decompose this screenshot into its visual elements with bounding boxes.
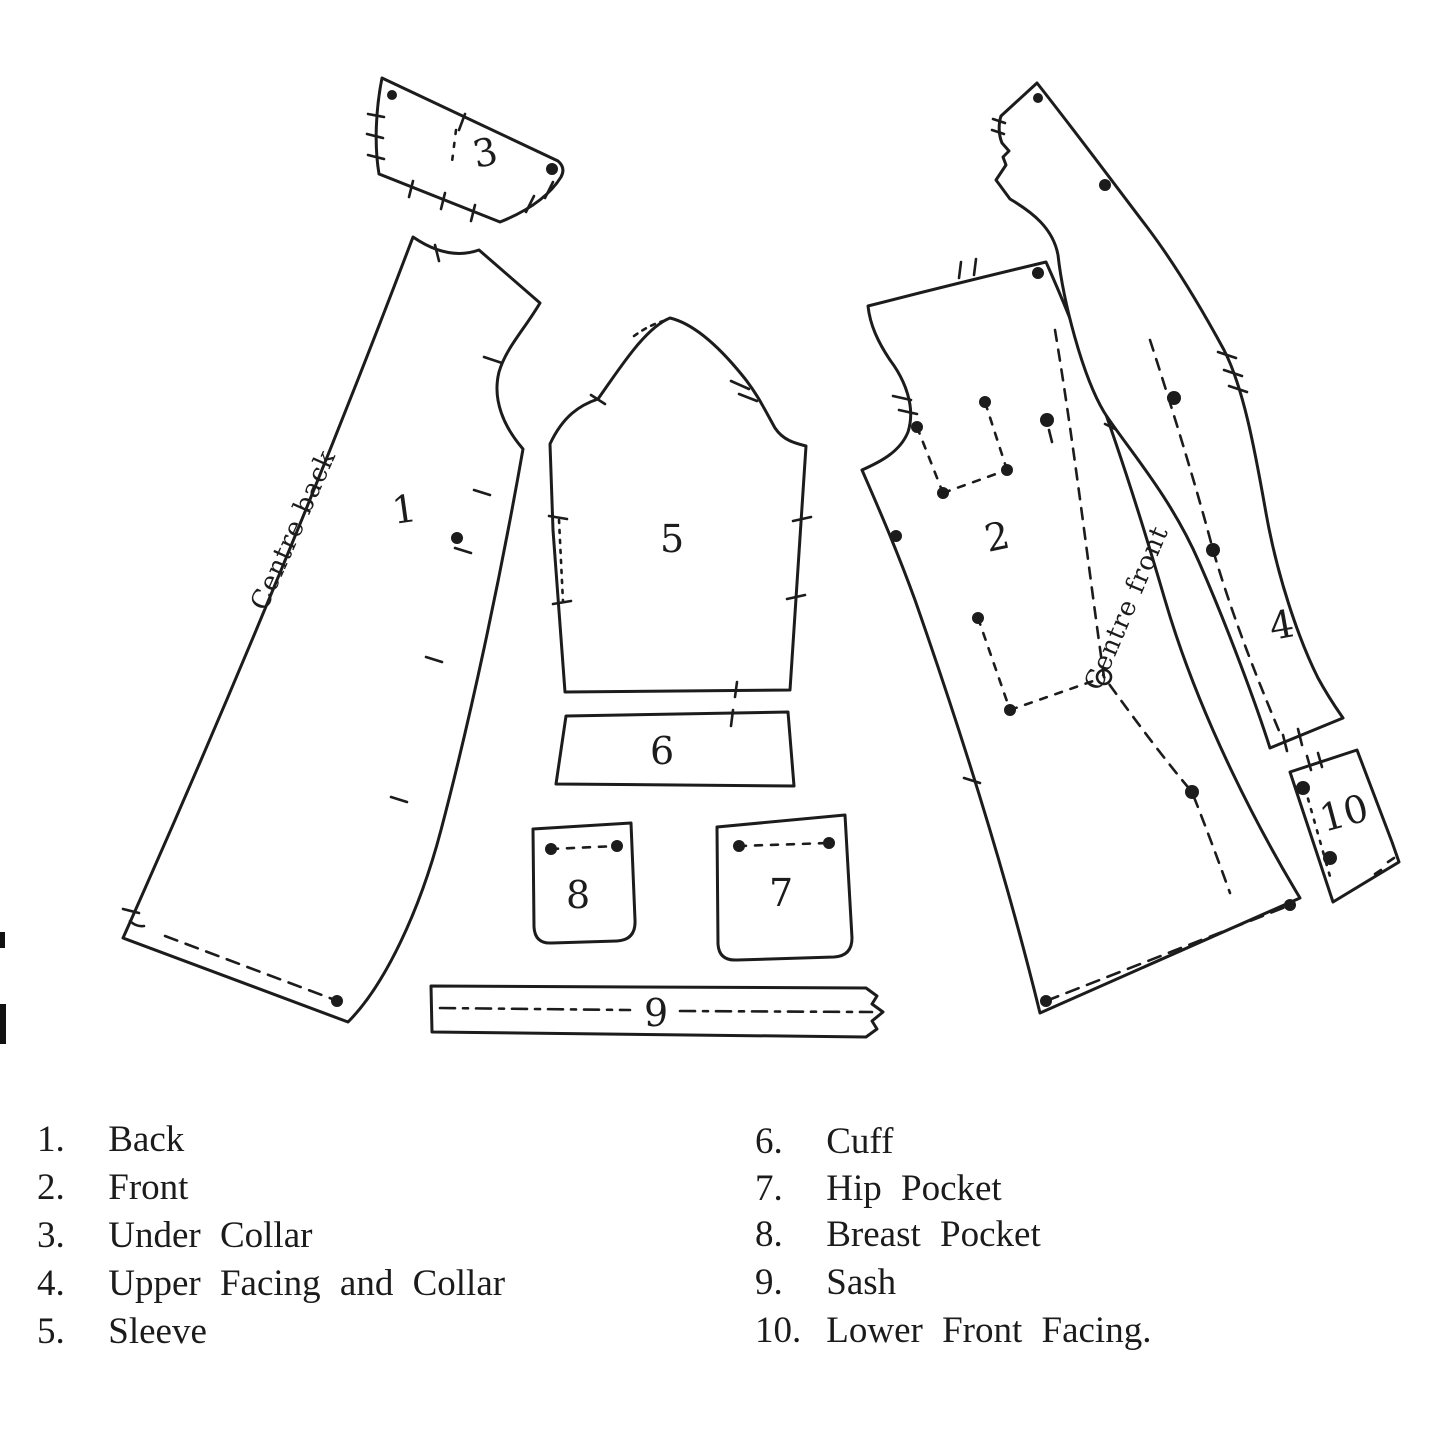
piece-sleeve: 5 (549, 318, 811, 697)
legend-label: Hip Pocket (826, 1168, 1001, 1209)
piece-number-9: 9 (644, 991, 668, 1035)
piece-cuff: 6 (556, 710, 794, 786)
legend-number: 3. (37, 1216, 99, 1257)
piece-under-collar-outline (376, 78, 563, 222)
legend-item-6: 6. Cuff (755, 1122, 893, 1163)
legend-label: Cuff (826, 1121, 893, 1162)
piece-breast-pocket: 8 (533, 823, 635, 943)
piece-sash: 9 (431, 986, 883, 1037)
legend-number: 6. (755, 1122, 817, 1163)
legend-item-9: 9. Sash (755, 1263, 896, 1304)
legend-item-4: 4. Upper Facing and Collar (37, 1264, 505, 1305)
piece-hip-pocket: 7 (717, 815, 852, 960)
piece-number-6: 6 (650, 729, 674, 773)
legend-number: 1. (37, 1120, 99, 1161)
piece-cuff-outline (556, 712, 794, 786)
legend-item-7: 7. Hip Pocket (755, 1169, 1002, 1210)
legend-number: 8. (755, 1215, 817, 1256)
legend-label: Breast Pocket (826, 1214, 1040, 1255)
legend-label: Back (108, 1119, 184, 1160)
legend-item-1: 1. Back (37, 1120, 184, 1161)
legend-label: Lower Front Facing. (826, 1310, 1151, 1351)
scan-artifact (0, 1004, 6, 1044)
legend-item-10: 10. Lower Front Facing. (755, 1311, 1151, 1352)
piece-number-5: 5 (660, 517, 684, 561)
legend-number: 10. (755, 1311, 817, 1352)
piece-back: 1 Centre back (123, 237, 540, 1022)
piece-under-collar: 3 (367, 78, 563, 222)
legend-number: 2. (37, 1168, 99, 1209)
legend-label: Upper Facing and Collar (108, 1263, 505, 1304)
piece-number-8: 8 (566, 873, 590, 917)
piece-number-7: 7 (769, 871, 793, 915)
legend-label: Under Collar (108, 1215, 312, 1256)
legend-label: Sash (826, 1262, 896, 1303)
legend-number: 4. (37, 1264, 99, 1305)
legend-item-5: 5. Sleeve (37, 1312, 207, 1353)
legend-item-2: 2. Front (37, 1168, 188, 1209)
piece-sleeve-outline (550, 318, 806, 692)
piece-lower-front-facing: 10 (1290, 750, 1399, 902)
piece-back-outline (123, 237, 540, 1022)
legend-number: 5. (37, 1312, 99, 1353)
legend-number: 7. (755, 1169, 817, 1210)
legend-label: Front (108, 1167, 188, 1208)
legend-label: Sleeve (108, 1311, 207, 1352)
scanned-pattern-page: 3 1 Centre back (0, 0, 1445, 1445)
legend-number: 9. (755, 1263, 817, 1304)
legend-item-8: 8. Breast Pocket (755, 1215, 1041, 1256)
legend-item-3: 3. Under Collar (37, 1216, 312, 1257)
scan-artifact (0, 932, 5, 948)
